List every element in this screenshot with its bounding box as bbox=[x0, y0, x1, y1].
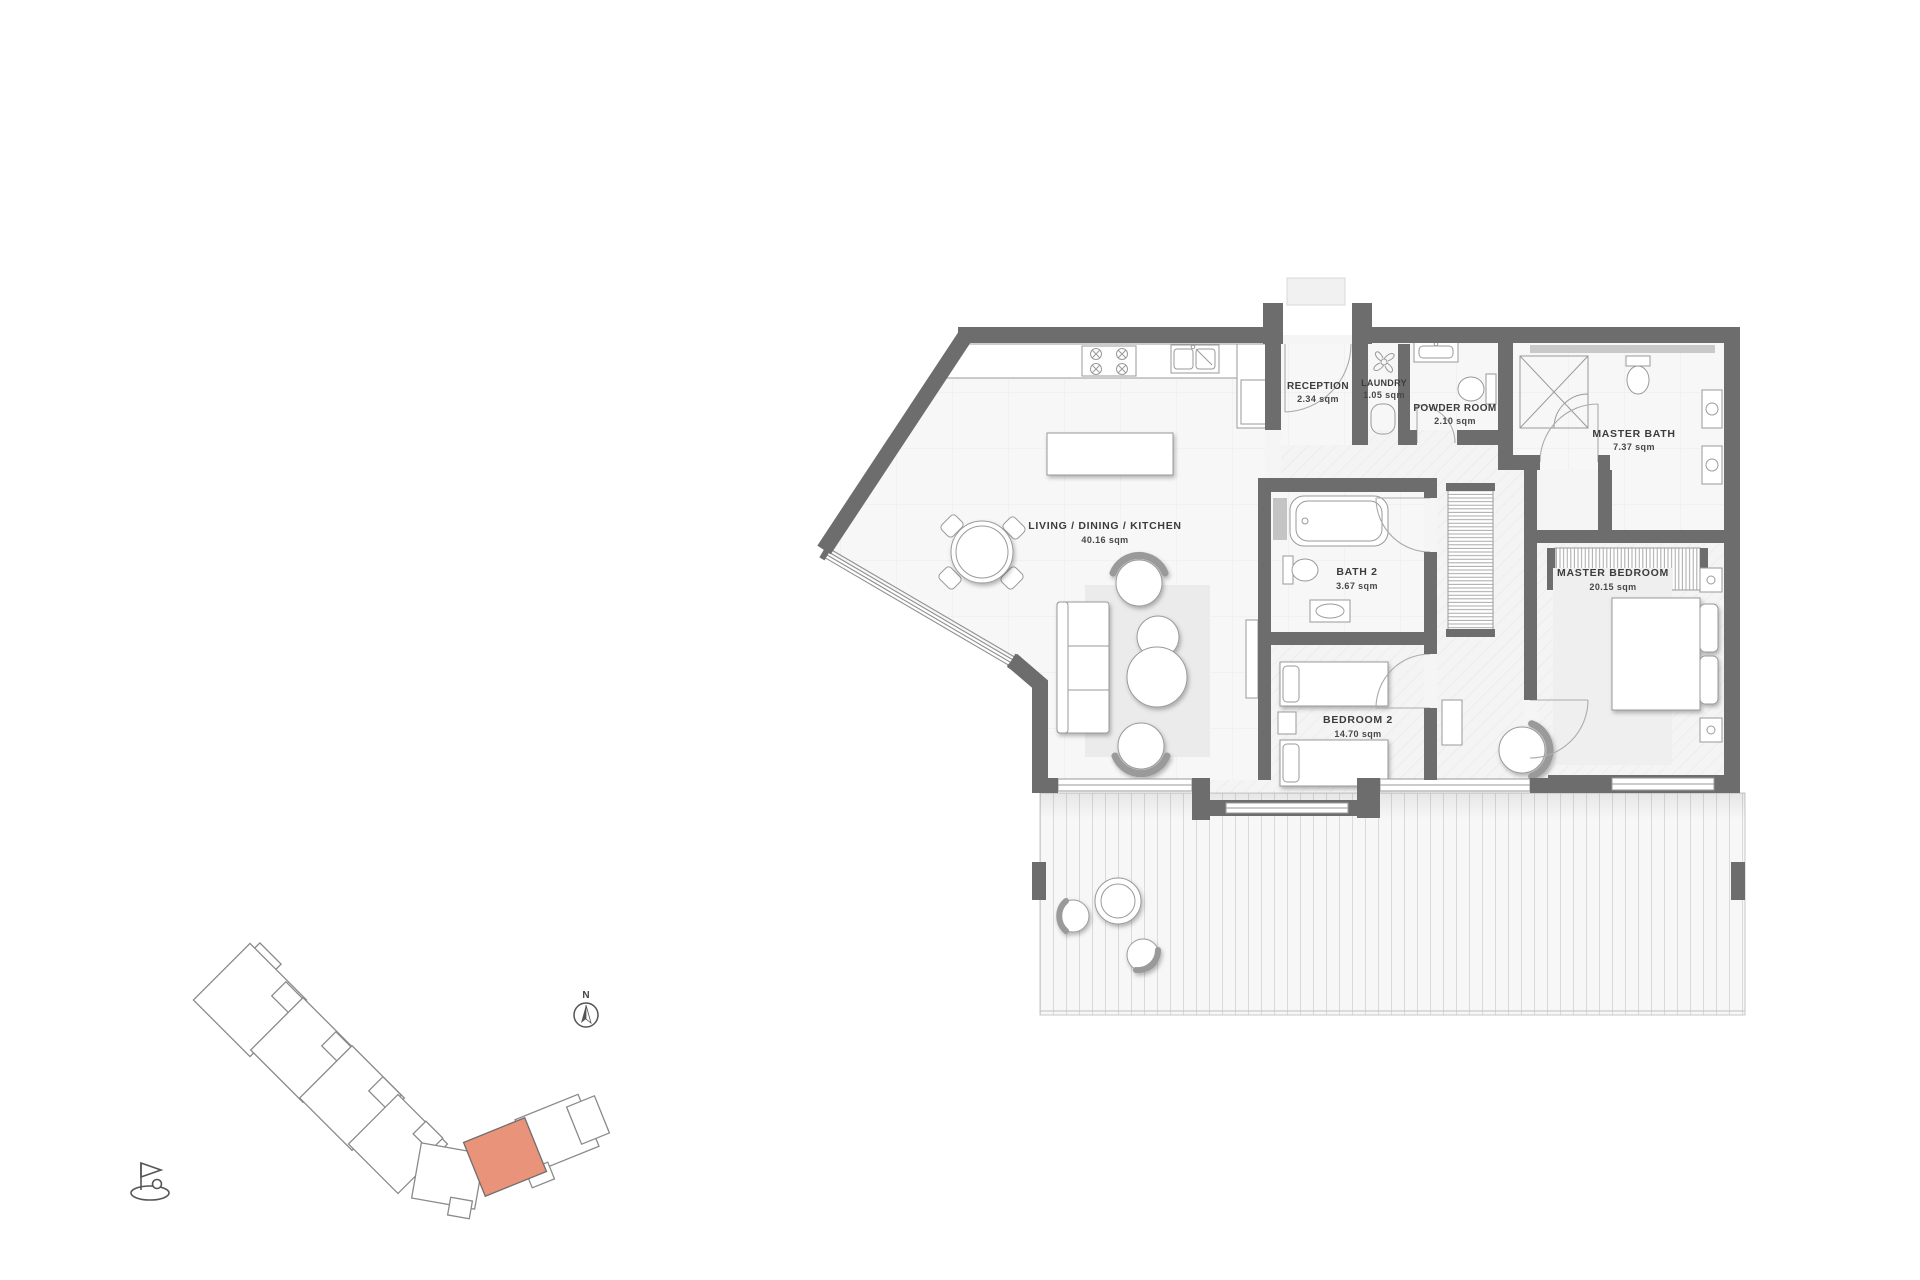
kitchen-island bbox=[1047, 433, 1173, 475]
floor-plan-drawing: LIVING / DINING / KITCHEN 40.16 sqm RECE… bbox=[0, 0, 1920, 1280]
wall-top-right bbox=[1372, 327, 1740, 343]
toilet bbox=[1458, 374, 1496, 404]
wall-pillar bbox=[1032, 778, 1058, 793]
wall-pillar bbox=[1192, 778, 1210, 820]
toilet bbox=[1626, 356, 1650, 394]
room-label: LAUNDRY bbox=[1361, 378, 1407, 388]
wall-corridor-left bbox=[1424, 708, 1437, 780]
room-label: BEDROOM 2 bbox=[1323, 714, 1393, 726]
terrace-deck bbox=[1040, 793, 1745, 1015]
dining-set bbox=[937, 513, 1026, 590]
sofa bbox=[1057, 602, 1109, 733]
room-area: 3.67 sqm bbox=[1336, 581, 1378, 591]
wall-masterbath-south bbox=[1598, 455, 1610, 470]
wall-bath2-north bbox=[1258, 478, 1424, 492]
room-label: BATH 2 bbox=[1336, 566, 1377, 578]
room-area: 20.15 sqm bbox=[1589, 582, 1636, 592]
nightstand bbox=[1700, 568, 1722, 592]
wall-powder-south bbox=[1410, 430, 1417, 445]
nightstand bbox=[1700, 718, 1722, 742]
site-plan bbox=[193, 943, 609, 1219]
wall-living-right bbox=[1258, 492, 1271, 780]
outdoor-table bbox=[1095, 878, 1141, 924]
wall-bath2-bedroom2 bbox=[1271, 632, 1424, 645]
wall-right bbox=[1724, 327, 1740, 793]
wall-corridor-left bbox=[1424, 552, 1437, 654]
compass-label: N bbox=[582, 990, 589, 1001]
room-label: POWDER ROOM bbox=[1413, 403, 1496, 414]
console-table bbox=[1442, 700, 1462, 745]
hall-floor bbox=[1368, 430, 1398, 445]
sliding-door bbox=[1380, 779, 1530, 791]
glass-panel bbox=[1530, 345, 1715, 353]
wall-masterbath-south bbox=[1513, 455, 1540, 470]
wall-pillar bbox=[1530, 778, 1548, 793]
bed-single bbox=[1280, 662, 1388, 706]
terrace-pillar bbox=[1731, 862, 1745, 900]
room-area: 2.34 sqm bbox=[1297, 394, 1339, 404]
room-area: 1.05 sqm bbox=[1363, 390, 1405, 400]
entry-landing bbox=[1287, 278, 1345, 305]
wall-master-bedroom-north bbox=[1537, 530, 1724, 543]
bath-niche bbox=[1273, 498, 1287, 540]
wall-reception-right bbox=[1352, 305, 1368, 445]
golf-flag-icon bbox=[131, 1163, 169, 1200]
outdoor-chair bbox=[1127, 939, 1159, 971]
nightstand bbox=[1278, 712, 1296, 734]
wall-master-south bbox=[1548, 775, 1724, 793]
outdoor-chair bbox=[1057, 900, 1089, 932]
wall-reception-left bbox=[1265, 308, 1281, 430]
dining-table bbox=[951, 521, 1013, 583]
wall-powder-masterbath bbox=[1498, 327, 1513, 470]
room-area: 14.70 sqm bbox=[1334, 729, 1381, 739]
room-area: 2.10 sqm bbox=[1434, 416, 1476, 426]
room-label: MASTER BATH bbox=[1592, 428, 1675, 440]
room-label: MASTER BEDROOM bbox=[1557, 567, 1669, 579]
tv-console bbox=[1246, 620, 1258, 698]
wall-bedroom2-south bbox=[1210, 800, 1380, 816]
kitchen-counter bbox=[938, 344, 1270, 378]
bathtub bbox=[1290, 496, 1388, 546]
terrace-shadow bbox=[1040, 793, 1745, 819]
wall-corridor-left bbox=[1424, 478, 1437, 498]
north-arrow-icon: N bbox=[574, 990, 598, 1027]
hall-floor bbox=[1417, 430, 1457, 445]
wall-corridor-right bbox=[1524, 470, 1537, 700]
room-area: 7.37 sqm bbox=[1613, 442, 1655, 452]
floor-plan-page: LIVING / DINING / KITCHEN 40.16 sqm RECE… bbox=[0, 0, 1920, 1280]
washbasin bbox=[1310, 600, 1350, 622]
terrace bbox=[1032, 793, 1745, 1015]
sliding-door bbox=[1058, 779, 1192, 791]
site-plan-unit bbox=[448, 1197, 473, 1219]
washbasin bbox=[1702, 446, 1722, 484]
room-label: RECEPTION bbox=[1287, 381, 1349, 392]
wall-top-left bbox=[958, 327, 1283, 343]
room-label: LIVING / DINING / KITCHEN bbox=[1028, 520, 1181, 532]
washbasin bbox=[1414, 342, 1458, 362]
room-area: 40.16 sqm bbox=[1081, 535, 1128, 545]
wall-left-lower bbox=[1012, 660, 1040, 790]
washbasin bbox=[1702, 390, 1722, 428]
terrace-pillar bbox=[1032, 862, 1046, 900]
wardrobe bbox=[1446, 483, 1495, 637]
